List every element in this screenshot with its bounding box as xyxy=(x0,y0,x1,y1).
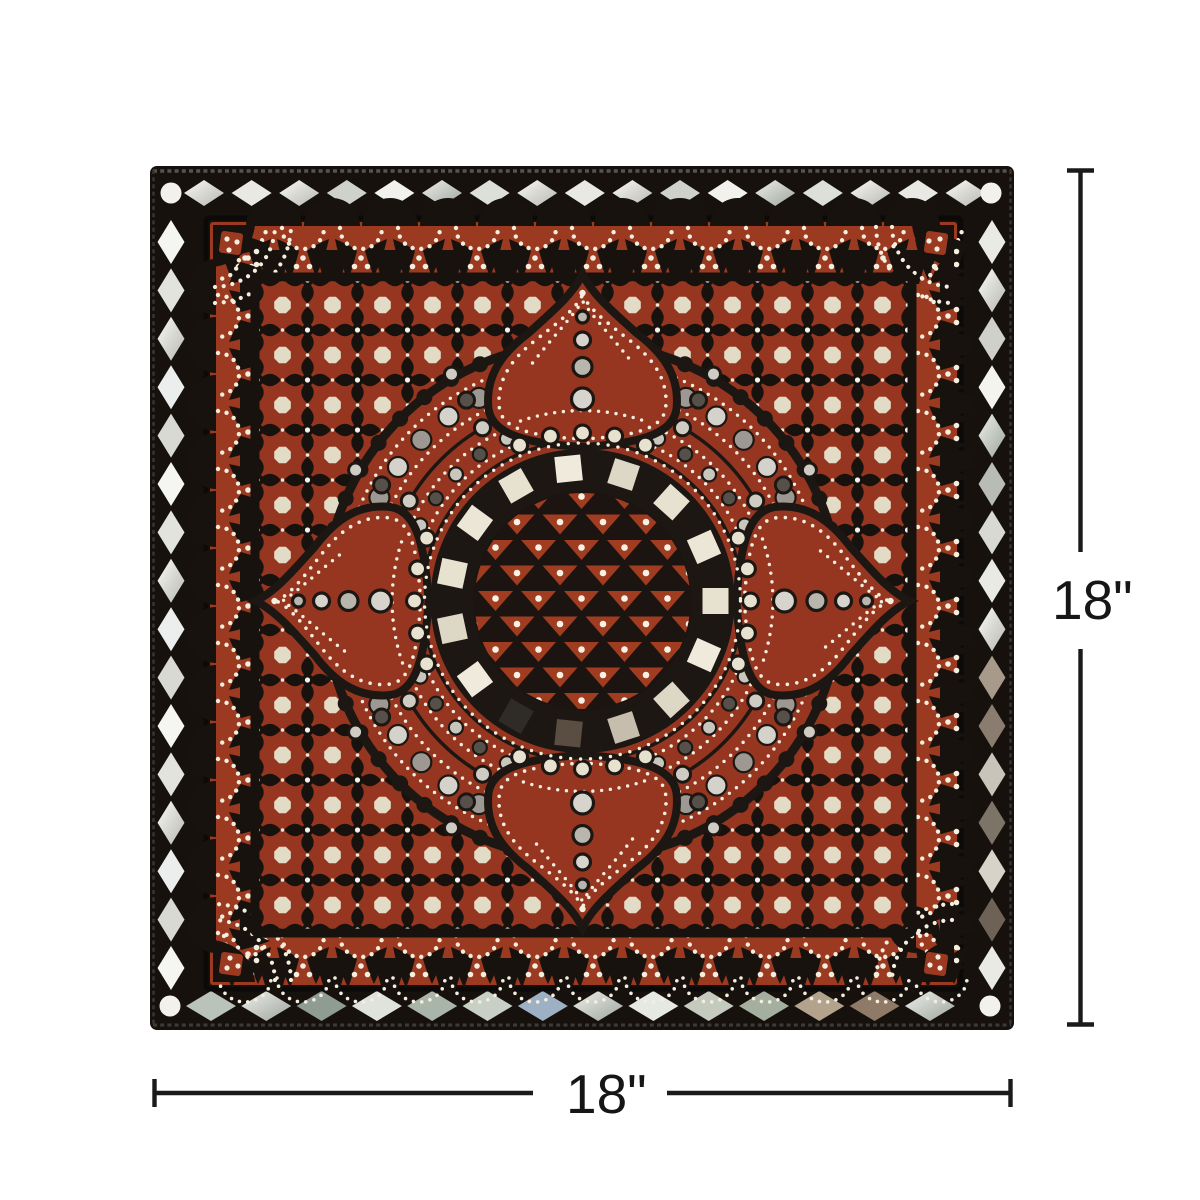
svg-text:18": 18" xyxy=(566,1063,647,1125)
svg-text:18": 18" xyxy=(1052,569,1133,631)
